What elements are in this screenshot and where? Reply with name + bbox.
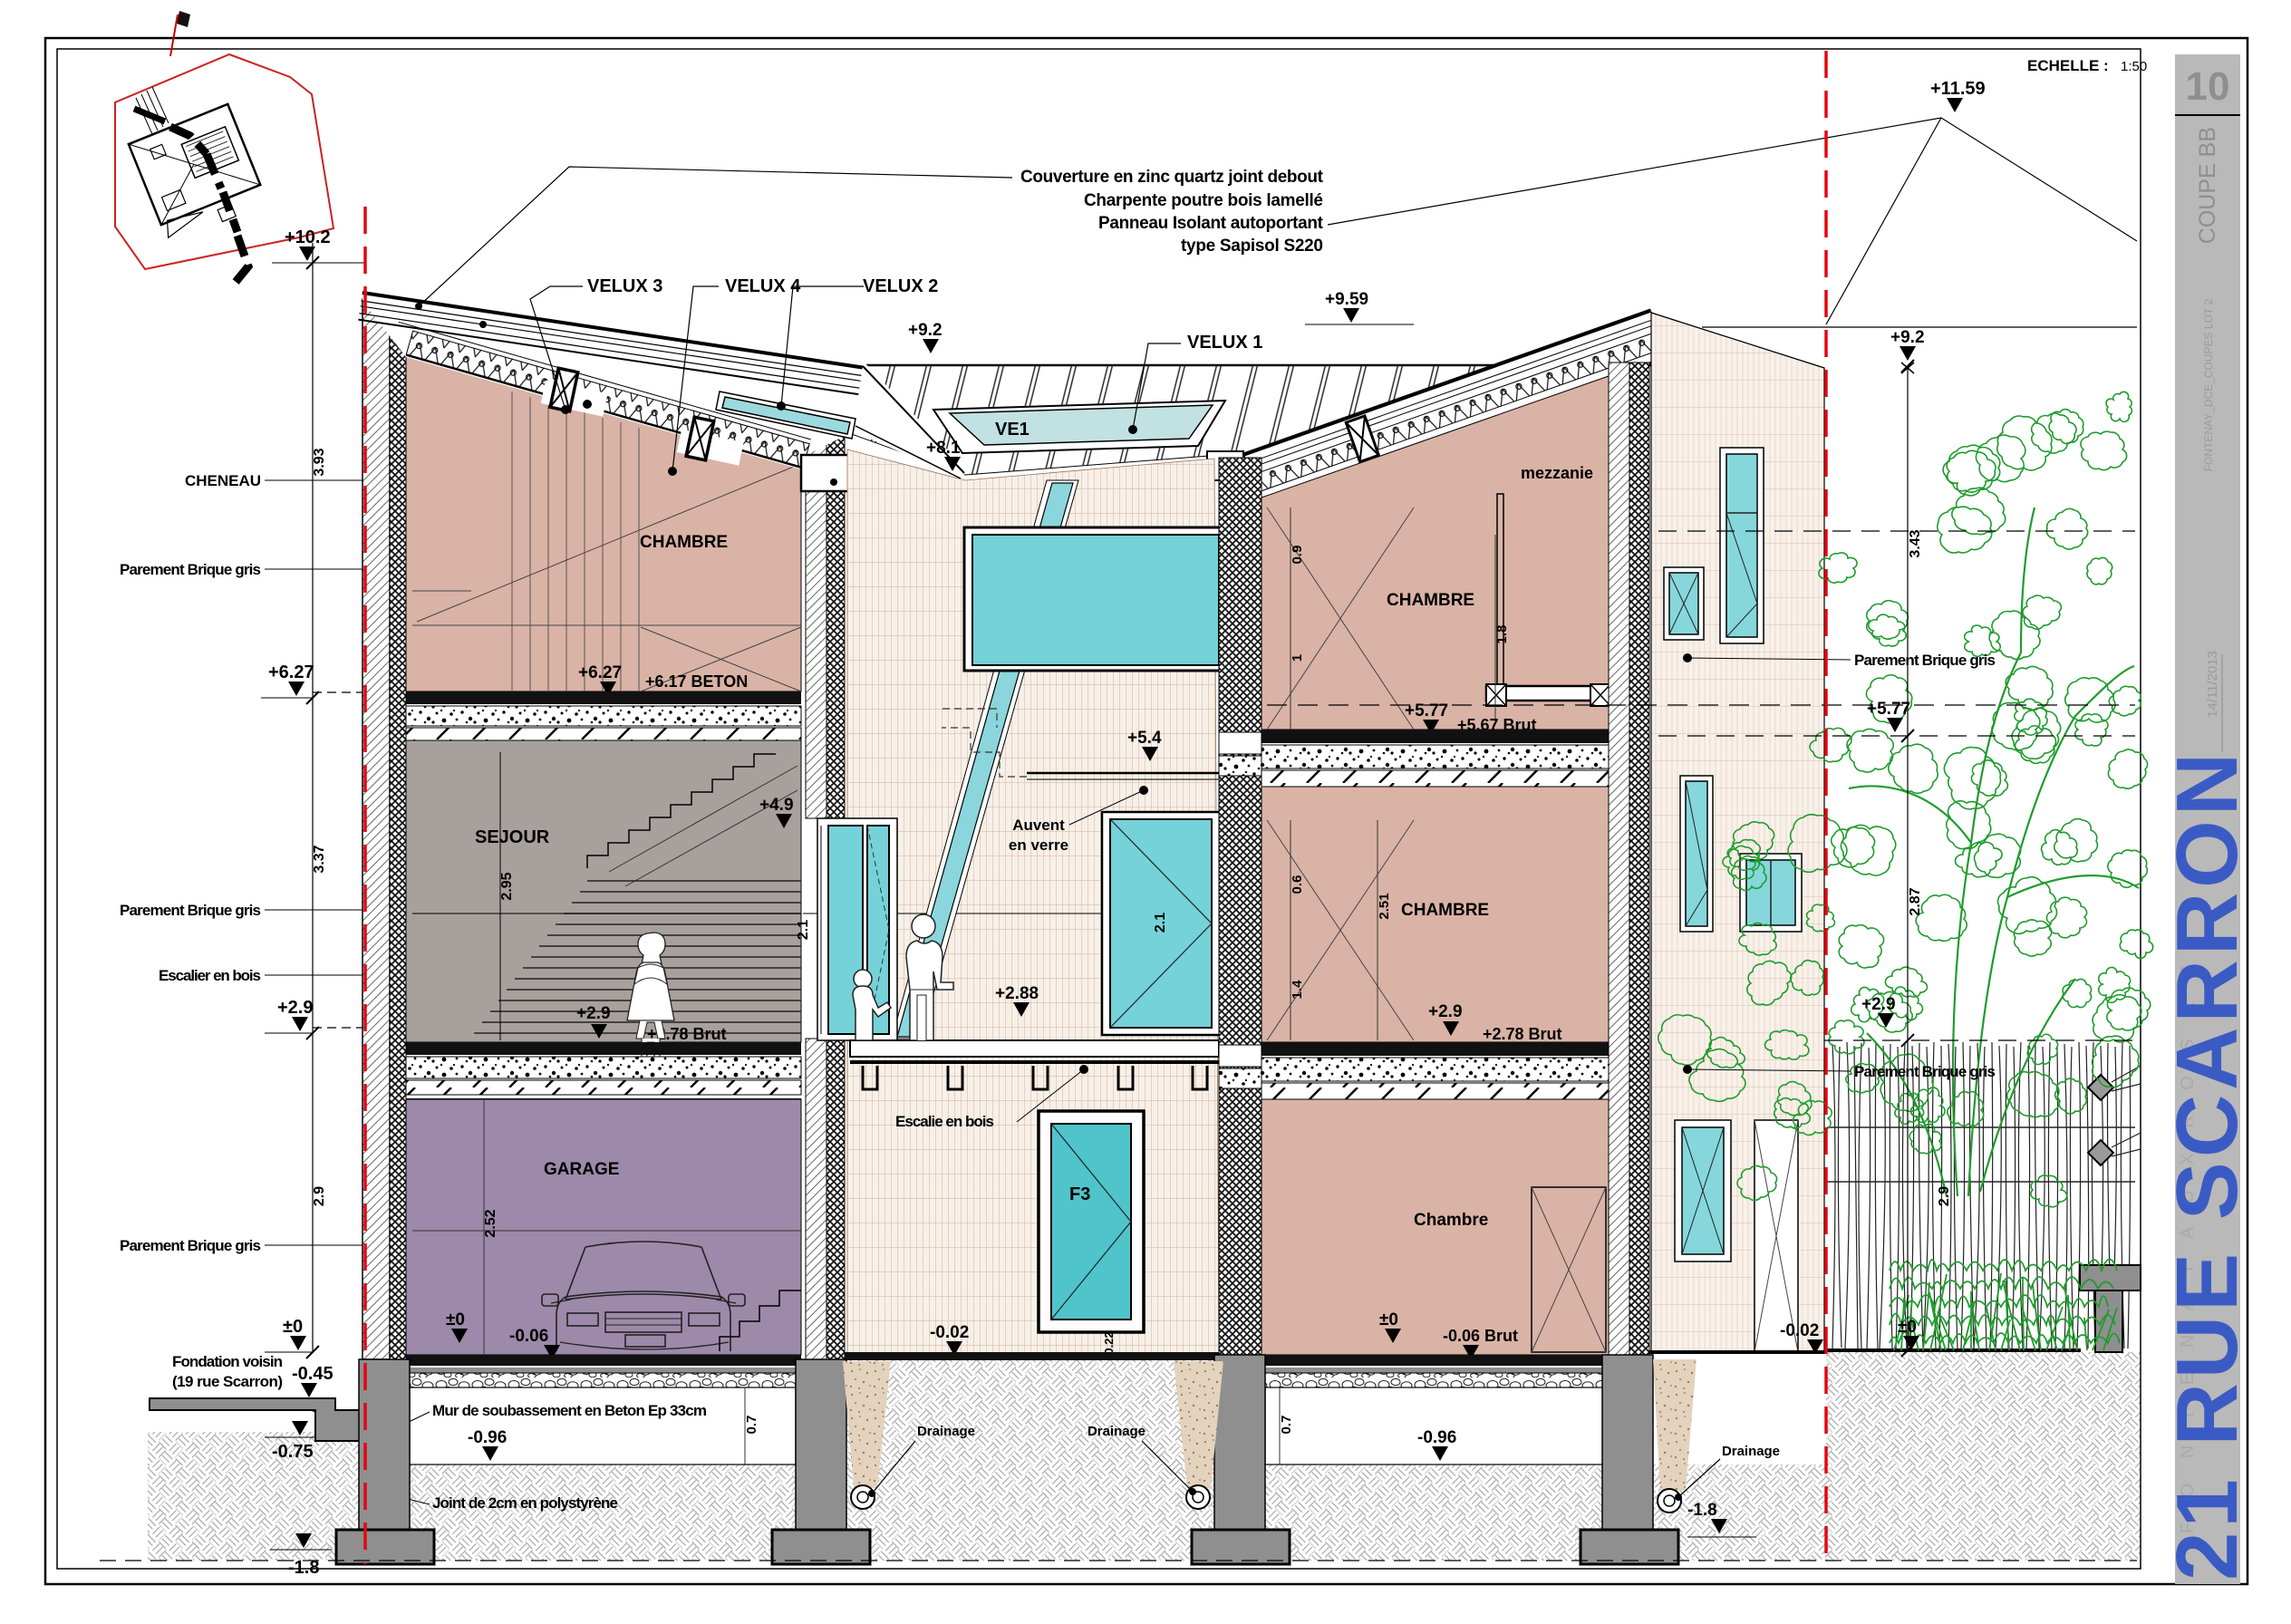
svg-text:21 RUE SCARRON: 21 RUE SCARRON — [2159, 749, 2256, 1580]
svg-text:FONTENAY_DCE_COUPES LOT 2: FONTENAY_DCE_COUPES LOT 2 — [2202, 299, 2215, 472]
svg-text:+8.1: +8.1 — [926, 439, 961, 458]
svg-text:2.1: 2.1 — [1153, 913, 1168, 933]
svg-text:1.4: 1.4 — [1290, 980, 1305, 1000]
svg-text:Escalie en bois: Escalie en bois — [895, 1113, 994, 1130]
svg-text:CHENEAU: CHENEAU — [185, 472, 261, 489]
svg-text:SEJOUR: SEJOUR — [475, 827, 550, 847]
svg-text:F3: F3 — [1069, 1184, 1090, 1204]
svg-text:-0.06: -0.06 — [509, 1327, 548, 1346]
svg-text:-0.06 Brut: -0.06 Brut — [1443, 1327, 1518, 1345]
svg-text:type Sapisol S220: type Sapisol S220 — [1181, 237, 1323, 256]
svg-text:2.9: 2.9 — [1937, 1186, 1952, 1206]
svg-text:-0.02: -0.02 — [930, 1323, 969, 1342]
svg-text:-0.75: -0.75 — [272, 1442, 314, 1462]
svg-text:en verre: en verre — [1009, 836, 1068, 854]
svg-text:+9.2: +9.2 — [1890, 328, 1925, 347]
svg-text:Panneau Isolant autoportant: Panneau Isolant autoportant — [1098, 214, 1324, 233]
svg-text:+6.27: +6.27 — [268, 662, 314, 682]
svg-text:+9.59: +9.59 — [1325, 290, 1368, 309]
svg-text:0.7: 0.7 — [1279, 1416, 1294, 1435]
svg-text:-0.02: -0.02 — [1780, 1321, 1819, 1340]
svg-text:Parement Brique gris: Parement Brique gris — [1854, 1063, 1996, 1080]
svg-text:2.1: 2.1 — [796, 920, 811, 940]
svg-text:10: 10 — [2186, 64, 2230, 109]
svg-text:2.51: 2.51 — [1377, 893, 1392, 919]
svg-text:1:50: 1:50 — [2121, 59, 2147, 74]
svg-text:-0.96: -0.96 — [1417, 1428, 1456, 1447]
svg-text:±0: ±0 — [1379, 1310, 1398, 1329]
svg-text:Parement Brique gris: Parement Brique gris — [1854, 652, 1996, 669]
svg-text:VELUX 4: VELUX 4 — [725, 276, 801, 296]
svg-text:GARAGE: GARAGE — [544, 1160, 619, 1179]
svg-text:2.52: 2.52 — [483, 1209, 498, 1237]
svg-text:3.37: 3.37 — [312, 845, 327, 873]
svg-text:+2.78 Brut: +2.78 Brut — [1483, 1025, 1562, 1043]
svg-text:Chambre: Chambre — [1414, 1211, 1488, 1230]
svg-text:2.9: 2.9 — [312, 1186, 327, 1206]
svg-text:+2.9: +2.9 — [277, 998, 313, 1018]
svg-text:0.9: 0.9 — [1290, 546, 1305, 565]
svg-text:COUPE BB: COUPE BB — [2195, 127, 2220, 244]
svg-text:mezzanie: mezzanie — [1521, 464, 1593, 482]
svg-text:+2.88: +2.88 — [995, 984, 1039, 1003]
svg-text:0.7: 0.7 — [744, 1416, 759, 1435]
svg-text:Couverture en zinc quartz join: Couverture en zinc quartz joint debout — [1020, 168, 1324, 187]
svg-text:+2.9: +2.9 — [1861, 995, 1896, 1014]
svg-text:Charpente poutre bois lamellé: Charpente poutre bois lamellé — [1084, 191, 1323, 210]
svg-text:14/11/2013: 14/11/2013 — [2205, 651, 2220, 718]
svg-text:CHAMBRE: CHAMBRE — [1387, 591, 1474, 610]
svg-text:+10.2: +10.2 — [285, 227, 331, 247]
svg-text:+5.4: +5.4 — [1127, 729, 1162, 748]
svg-text:±0: ±0 — [283, 1317, 303, 1337]
svg-text:VELUX 1: VELUX 1 — [1187, 333, 1262, 353]
svg-text:CHAMBRE: CHAMBRE — [1401, 901, 1489, 920]
svg-text:Mur de soubassement en Beton E: Mur de soubassement en Beton Ep 33cm — [432, 1402, 707, 1419]
svg-text:(19 rue Scarron): (19 rue Scarron) — [172, 1373, 283, 1390]
svg-text:0.22: 0.22 — [1102, 1331, 1116, 1354]
svg-text:Fondation voisin: Fondation voisin — [172, 1353, 283, 1370]
svg-text:+11.59: +11.59 — [1930, 79, 1986, 99]
svg-text:VE1: VE1 — [995, 420, 1029, 440]
svg-text:Parement Brique gris: Parement Brique gris — [120, 561, 261, 578]
svg-text:Parement Brique gris: Parement Brique gris — [120, 902, 261, 919]
svg-text:+2.9: +2.9 — [1428, 1002, 1463, 1021]
svg-text:-1.8: -1.8 — [1687, 1501, 1717, 1520]
svg-text:0.6: 0.6 — [1290, 875, 1305, 894]
svg-text:+5.77: +5.77 — [1867, 700, 1910, 719]
svg-text:Escalier en bois: Escalier en bois — [159, 967, 261, 984]
svg-text:Drainage: Drainage — [1722, 1444, 1780, 1459]
svg-text:+6.27: +6.27 — [578, 663, 622, 682]
svg-text:Drainage: Drainage — [917, 1424, 975, 1439]
svg-text:3.93: 3.93 — [312, 448, 327, 476]
svg-text:-0.96: -0.96 — [468, 1428, 507, 1447]
svg-text:±0: ±0 — [446, 1310, 465, 1329]
svg-text:CHAMBRE: CHAMBRE — [640, 533, 728, 552]
svg-text:+6.17 BETON: +6.17 BETON — [645, 672, 748, 691]
svg-text:3.43: 3.43 — [1908, 529, 1923, 557]
svg-text:Joint de 2cm en polystyrène: Joint de 2cm en polystyrène — [432, 1494, 618, 1512]
svg-text:+2.9: +2.9 — [576, 1004, 611, 1023]
svg-text:VELUX 3: VELUX 3 — [587, 276, 662, 296]
svg-text:2.87: 2.87 — [1908, 887, 1923, 915]
svg-text:VELUX 2: VELUX 2 — [863, 276, 938, 296]
svg-text:2.95: 2.95 — [499, 872, 515, 900]
svg-text:ECHELLE :: ECHELLE : — [2027, 57, 2109, 74]
svg-text:Auvent: Auvent — [1012, 817, 1065, 834]
svg-text:-0.45: -0.45 — [292, 1364, 333, 1384]
svg-text:+4.9: +4.9 — [759, 796, 794, 815]
svg-text:1.8: 1.8 — [1494, 625, 1510, 644]
svg-text:+9.2: +9.2 — [908, 321, 942, 340]
svg-text:Drainage: Drainage — [1087, 1424, 1145, 1439]
svg-text:Parement Brique gris: Parement Brique gris — [120, 1237, 261, 1254]
svg-text:+5.77: +5.77 — [1405, 701, 1448, 720]
svg-text:1: 1 — [1290, 654, 1305, 662]
